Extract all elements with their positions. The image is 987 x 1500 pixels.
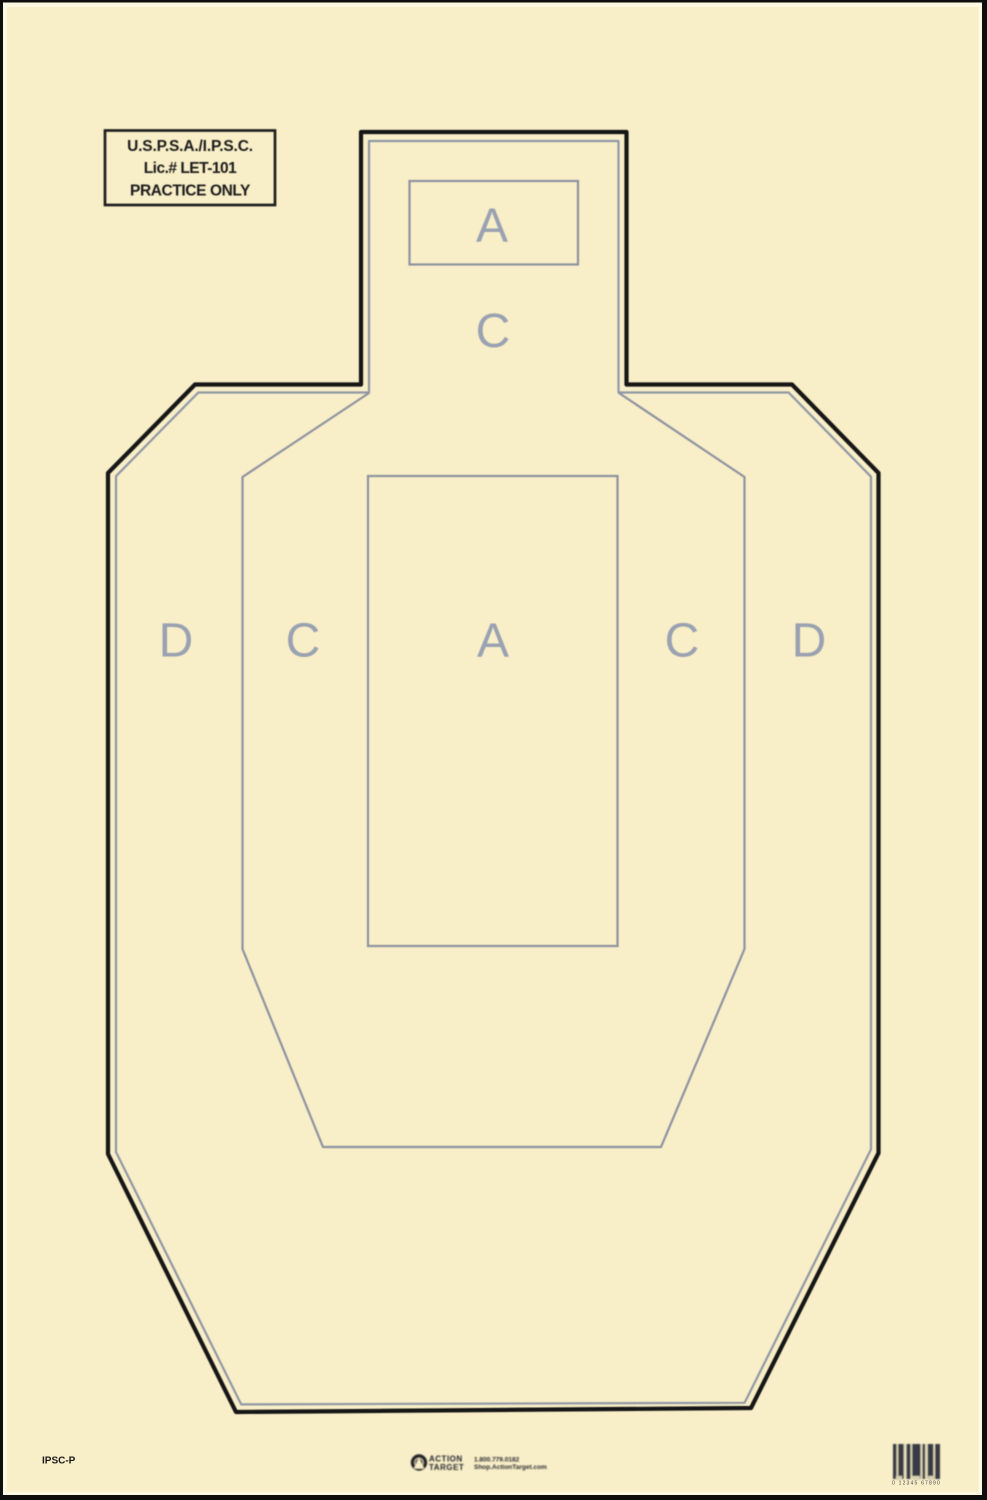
svg-text:1.800.779.0182: 1.800.779.0182: [474, 1457, 520, 1464]
svg-text:Shop.ActionTarget.com: Shop.ActionTarget.com: [474, 1464, 547, 1471]
svg-text:C: C: [665, 615, 700, 668]
svg-text:TARGET: TARGET: [429, 1463, 464, 1472]
svg-text:A: A: [476, 199, 508, 252]
svg-text:D: D: [792, 615, 827, 668]
svg-text:0 12345 67890: 0 12345 67890: [892, 1481, 941, 1487]
svg-text:Lic.# LET-101: Lic.# LET-101: [144, 160, 237, 177]
svg-text:C: C: [476, 305, 511, 358]
svg-text:PRACTICE ONLY: PRACTICE ONLY: [130, 182, 251, 199]
svg-text:A: A: [477, 615, 509, 668]
svg-text:IPSC-P: IPSC-P: [42, 1456, 76, 1467]
svg-text:C: C: [286, 615, 321, 668]
svg-text:D: D: [159, 615, 194, 668]
svg-text:U.S.P.S.A./I.P.S.C.: U.S.P.S.A./I.P.S.C.: [127, 138, 253, 155]
